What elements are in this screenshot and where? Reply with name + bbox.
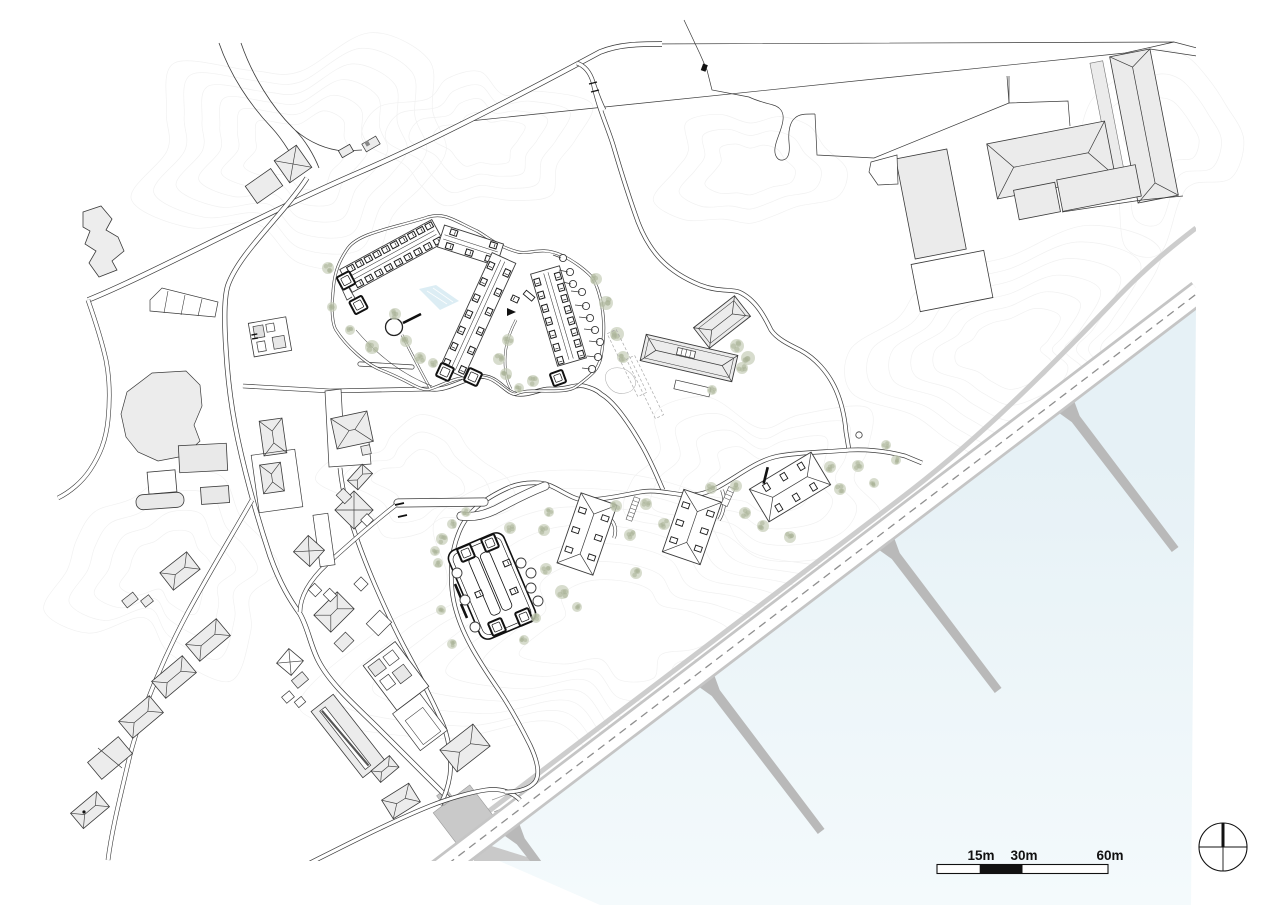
svg-text:30m: 30m [1010, 848, 1037, 863]
svg-text:15m: 15m [967, 848, 994, 863]
svg-text:60m: 60m [1096, 848, 1123, 863]
